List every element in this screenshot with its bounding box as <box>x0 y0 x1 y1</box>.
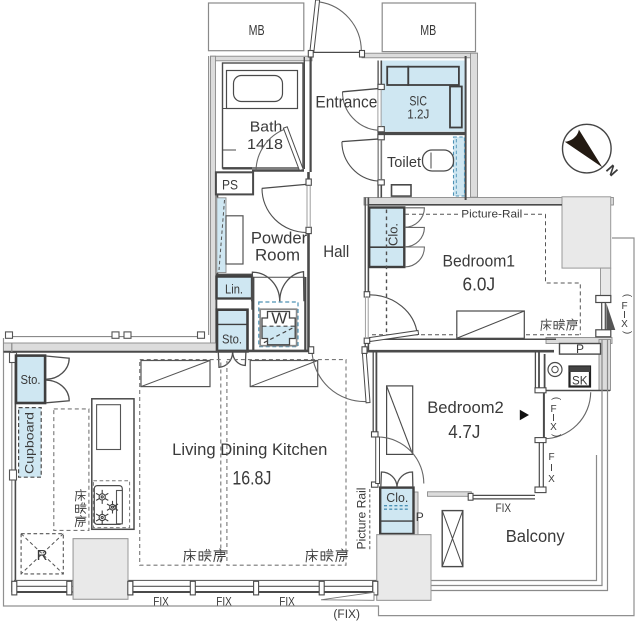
svg-text:): ) <box>622 331 633 334</box>
svg-text:Picture Rail: Picture Rail <box>357 488 369 550</box>
svg-text:): ) <box>551 434 562 437</box>
svg-text:1.2J: 1.2J <box>407 107 429 122</box>
svg-text:Living Dining Kitchen: Living Dining Kitchen <box>172 441 327 459</box>
svg-text:X: X <box>621 319 628 330</box>
svg-text:FIX: FIX <box>153 597 169 609</box>
svg-text:MB: MB <box>420 22 436 39</box>
svg-text:F: F <box>548 452 554 463</box>
svg-text:FIX: FIX <box>496 503 512 515</box>
svg-text:Clo.: Clo. <box>387 223 401 246</box>
svg-text:Cupboard: Cupboard <box>23 412 37 474</box>
svg-text:X: X <box>550 422 557 433</box>
svg-text:Lin.: Lin. <box>225 283 243 297</box>
svg-text:Toilet: Toilet <box>387 154 422 171</box>
svg-text:Sto.: Sto. <box>222 333 242 347</box>
svg-text:16.8J: 16.8J <box>232 469 271 490</box>
svg-text:FIX: FIX <box>279 597 295 609</box>
svg-text:(FIX): (FIX) <box>333 609 360 621</box>
svg-text:Picture-Rail: Picture-Rail <box>461 208 522 220</box>
svg-text:Entrance: Entrance <box>315 94 377 112</box>
svg-text:Sto.: Sto. <box>21 373 41 387</box>
svg-text:FIX: FIX <box>216 597 232 609</box>
svg-text:I: I <box>550 463 553 474</box>
svg-text:Bedroom2: Bedroom2 <box>427 398 504 417</box>
svg-text:Balcony: Balcony <box>506 526 565 546</box>
svg-text:Room: Room <box>255 247 300 265</box>
svg-text:W: W <box>271 310 287 327</box>
svg-text:X: X <box>548 474 555 485</box>
svg-text:R: R <box>37 547 48 564</box>
svg-text:Clo.: Clo. <box>386 491 408 505</box>
svg-text:MB: MB <box>249 22 265 39</box>
svg-text:SK: SK <box>572 374 588 388</box>
svg-text:PS: PS <box>222 178 238 193</box>
svg-text:P: P <box>576 342 584 356</box>
svg-text:4.7J: 4.7J <box>448 422 480 442</box>
svg-text:Hall: Hall <box>323 243 349 261</box>
svg-text:6.0J: 6.0J <box>463 275 496 295</box>
svg-text:Bedroom1: Bedroom1 <box>443 252 516 271</box>
svg-text:P: P <box>416 510 424 524</box>
